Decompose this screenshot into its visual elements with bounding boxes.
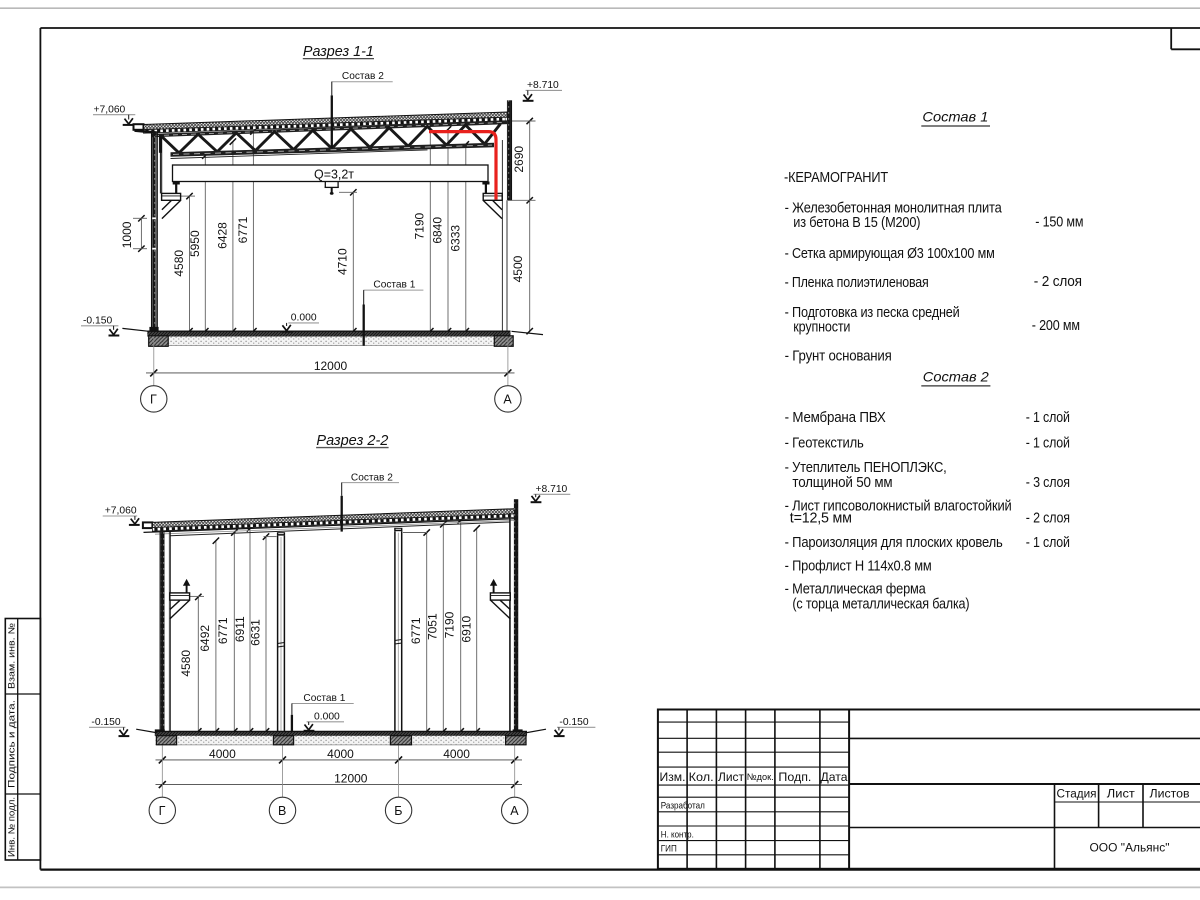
svg-text:5950: 5950 bbox=[188, 230, 202, 257]
svg-text:толщиной 50 мм: толщиной 50 мм bbox=[792, 475, 892, 491]
svg-text:6910: 6910 bbox=[459, 616, 473, 643]
svg-text:Разработал: Разработал bbox=[661, 801, 705, 812]
svg-text:ГИП: ГИП bbox=[661, 844, 677, 855]
svg-text:Листов: Листов bbox=[1150, 789, 1190, 801]
svg-text:Состав 1: Состав 1 bbox=[922, 109, 988, 125]
svg-text:-0.150: -0.150 bbox=[91, 717, 120, 728]
svg-text:12000: 12000 bbox=[334, 771, 368, 785]
svg-text:+7,060: +7,060 bbox=[94, 104, 126, 115]
svg-text:Состав 2: Состав 2 bbox=[342, 71, 384, 82]
svg-text:- Пленка полиэтиленовая: - Пленка полиэтиленовая bbox=[785, 275, 929, 291]
svg-text:Состав 2: Состав 2 bbox=[351, 472, 393, 483]
svg-text:Инв. № подл.: Инв. № подл. bbox=[7, 797, 17, 857]
svg-text:7190: 7190 bbox=[413, 212, 427, 239]
svg-text:крупности: крупности bbox=[793, 319, 850, 335]
svg-text:-КЕРАМОГРАНИТ: -КЕРАМОГРАНИТ bbox=[784, 170, 888, 186]
svg-text:6428: 6428 bbox=[216, 222, 230, 249]
svg-text:А: А bbox=[503, 393, 512, 407]
svg-text:- 1 слой: - 1 слой bbox=[1026, 436, 1070, 452]
svg-text:из бетона В 15 (М200): из бетона В 15 (М200) bbox=[793, 215, 920, 231]
svg-text:ООО "Альянс": ООО "Альянс" bbox=[1090, 841, 1170, 855]
svg-text:Лист: Лист bbox=[718, 770, 744, 784]
svg-text:- Грунт основания: - Грунт основания bbox=[785, 348, 892, 364]
svg-text:- 200 мм: - 200 мм bbox=[1032, 318, 1080, 334]
svg-text:Состав 2: Состав 2 bbox=[923, 369, 989, 385]
svg-text:Разрез 1-1: Разрез 1-1 bbox=[303, 44, 374, 60]
svg-text:- Пароизоляция для плоских кро: - Пароизоляция для плоских кровель bbox=[785, 535, 1003, 551]
svg-text:Состав 1: Состав 1 bbox=[303, 693, 345, 704]
svg-text:2690: 2690 bbox=[512, 146, 526, 173]
svg-text:- Геотекстиль: - Геотекстиль bbox=[785, 436, 864, 452]
svg-text:Г: Г bbox=[159, 804, 166, 818]
svg-text:Состав 1: Состав 1 bbox=[373, 279, 415, 290]
svg-text:Изм.: Изм. bbox=[660, 770, 686, 784]
svg-text:- Утеплитель ПЕНОПЛЭКС,: - Утеплитель ПЕНОПЛЭКС, bbox=[785, 460, 947, 476]
svg-text:- 1 слой: - 1 слой bbox=[1026, 535, 1070, 551]
svg-text:4000: 4000 bbox=[327, 747, 354, 761]
svg-text:12000: 12000 bbox=[314, 359, 348, 373]
svg-text:7051: 7051 bbox=[426, 613, 440, 640]
svg-text:-0.150: -0.150 bbox=[559, 717, 588, 728]
svg-text:6771: 6771 bbox=[216, 617, 230, 644]
svg-text:4580: 4580 bbox=[179, 650, 193, 677]
svg-text:t=12,5 мм: t=12,5 мм bbox=[790, 511, 852, 527]
svg-text:Кол.: Кол. bbox=[689, 770, 714, 784]
svg-text:0.000: 0.000 bbox=[314, 711, 340, 722]
svg-text:Разрез 2-2: Разрез 2-2 bbox=[316, 433, 388, 449]
svg-text:А: А bbox=[510, 804, 519, 818]
svg-text:Подпись и дата.: Подпись и дата. bbox=[7, 700, 17, 788]
svg-text:- 1 слой: - 1 слой bbox=[1026, 410, 1070, 426]
svg-text:-0.150: -0.150 bbox=[83, 315, 112, 326]
svg-text:4500: 4500 bbox=[511, 255, 525, 282]
svg-text:- Профлист Н 114x0.8 мм: - Профлист Н 114x0.8 мм bbox=[785, 558, 932, 574]
svg-text:+8.710: +8.710 bbox=[536, 484, 568, 495]
svg-text:В: В bbox=[278, 804, 286, 818]
svg-text:0.000: 0.000 bbox=[291, 313, 317, 324]
svg-text:Q=3,2т: Q=3,2т bbox=[314, 167, 354, 182]
svg-text:- 3 слоя: - 3 слоя bbox=[1026, 475, 1070, 491]
svg-text:6771: 6771 bbox=[236, 216, 250, 243]
svg-text:4000: 4000 bbox=[443, 747, 470, 761]
svg-text:(с торца металлическая балка): (с торца металлическая балка) bbox=[792, 596, 969, 612]
svg-text:- 2 слоя: - 2 слоя bbox=[1034, 274, 1082, 290]
svg-text:6840: 6840 bbox=[431, 217, 445, 244]
svg-text:7190: 7190 bbox=[443, 611, 457, 638]
svg-text:- 150 мм: - 150 мм bbox=[1035, 214, 1083, 230]
svg-text:- 2 слоя: - 2 слоя bbox=[1026, 511, 1070, 527]
svg-text:Стадия: Стадия bbox=[1057, 789, 1097, 801]
svg-text:4580: 4580 bbox=[172, 250, 186, 277]
svg-text:4000: 4000 bbox=[209, 747, 236, 761]
svg-text:- Мембрана ПВХ: - Мембрана ПВХ bbox=[785, 410, 886, 426]
svg-text:- Металлическая ферма: - Металлическая ферма bbox=[785, 582, 927, 598]
svg-text:№док.: №док. bbox=[747, 772, 774, 783]
svg-text:6333: 6333 bbox=[448, 225, 462, 252]
svg-text:4710: 4710 bbox=[336, 248, 350, 275]
svg-text:Дата: Дата bbox=[821, 770, 848, 784]
svg-text:+7,060: +7,060 bbox=[105, 506, 137, 517]
svg-text:Лист: Лист bbox=[1107, 789, 1136, 801]
svg-text:Г: Г bbox=[150, 393, 157, 407]
svg-text:- Сетка армирующая Ø3 100x100: - Сетка армирующая Ø3 100x100 мм bbox=[785, 246, 995, 262]
svg-text:Взам. инв. №: Взам. инв. № bbox=[7, 623, 17, 689]
svg-text:6492: 6492 bbox=[198, 625, 212, 652]
svg-text:Б: Б bbox=[394, 804, 402, 818]
svg-text:6911: 6911 bbox=[233, 616, 247, 642]
svg-text:1000: 1000 bbox=[120, 221, 134, 248]
svg-text:6631: 6631 bbox=[249, 619, 263, 646]
svg-text:6771: 6771 bbox=[409, 617, 423, 644]
svg-text:Н. контр.: Н. контр. bbox=[661, 829, 694, 840]
svg-text:+8.710: +8.710 bbox=[527, 80, 559, 91]
svg-text:Подп.: Подп. bbox=[778, 770, 811, 784]
